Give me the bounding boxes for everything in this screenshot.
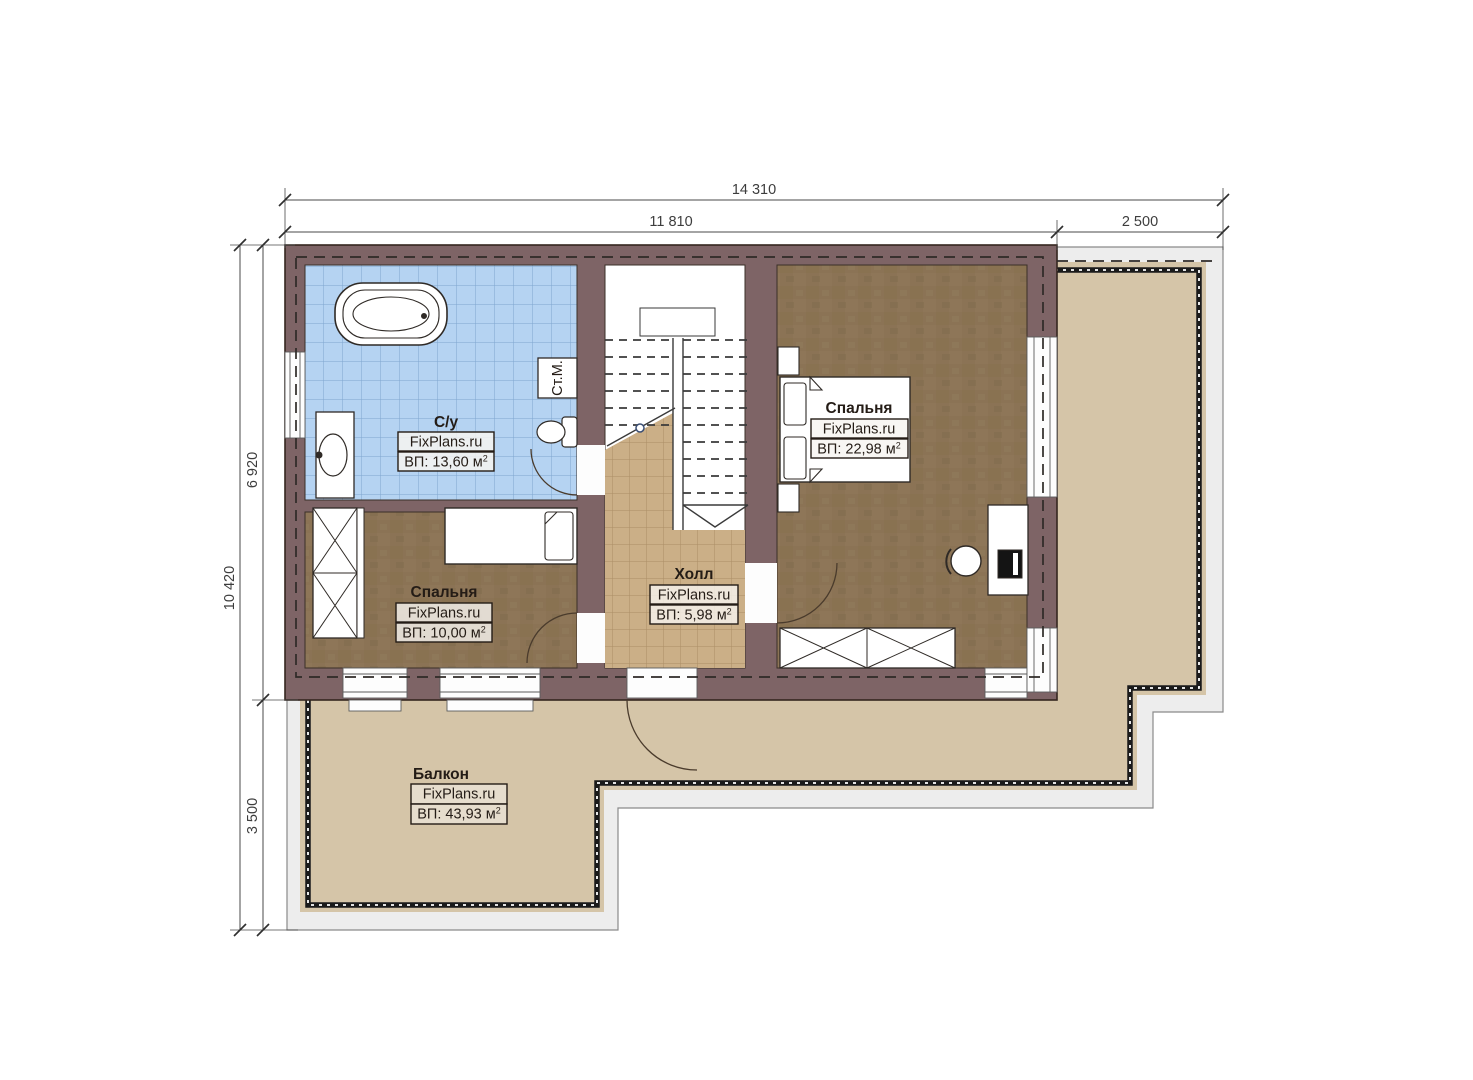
brand-bedroom-left: FixPlans.ru: [408, 606, 481, 622]
window-bottom-2: [440, 668, 540, 711]
area-value: ВП: 22,98 м: [817, 442, 895, 458]
door-opening-balcony: [627, 668, 697, 698]
area-value: ВП: 10,00 м: [402, 626, 480, 642]
area-balcony: ВП: 43,93 м2: [417, 806, 500, 823]
window-left-bathroom: [285, 352, 305, 438]
stair-route-node: [636, 424, 644, 432]
bathtub-drain: [422, 314, 427, 319]
sink: [316, 412, 354, 498]
dim-building-height: 6 920: [245, 452, 261, 488]
area-sup: 2: [483, 454, 488, 464]
bathtub: [335, 283, 447, 345]
area-sup: 2: [481, 625, 486, 635]
door-opening-bedroom-right: [745, 563, 777, 623]
room-name-bathroom: С/у: [434, 414, 459, 431]
area-hall: ВП: 5,98 м2: [656, 607, 731, 624]
monitor: [998, 550, 1022, 578]
door-opening-bedroom-left: [577, 613, 605, 663]
area-sup: 2: [896, 441, 901, 451]
door-opening-bathroom: [577, 445, 605, 495]
area-bathroom: ВП: 13,60 м2: [404, 454, 487, 471]
room-name-hall: Холл: [675, 566, 714, 583]
area-sup: 2: [727, 607, 732, 617]
wardrobe-bottom: [780, 628, 955, 668]
area-value: ВП: 13,60 м: [404, 455, 482, 471]
window-bottom-3: [985, 668, 1027, 698]
nightstand-bottom: [778, 484, 799, 512]
sink-tap: [316, 452, 322, 458]
area-bedroom-left: ВП: 10,00 м2: [402, 625, 485, 642]
window-bottom-1: [343, 668, 407, 711]
area-value: ВП: 43,93 м: [417, 807, 495, 823]
dim-overall-height: 10 420: [222, 566, 238, 610]
pillow-1: [784, 383, 806, 425]
washing-machine: Ст.М.: [538, 358, 577, 398]
desk: [988, 505, 1028, 595]
monitor-slit: [1013, 553, 1018, 575]
room-name-bedroom-left: Спальня: [411, 584, 478, 601]
brand-bedroom-right: FixPlans.ru: [823, 422, 896, 438]
area-value: ВП: 5,98 м: [656, 608, 726, 624]
dim-balcony-width: 2 500: [1122, 214, 1158, 230]
brand-hall: FixPlans.ru: [658, 588, 731, 604]
brand-balcony: FixPlans.ru: [423, 787, 496, 803]
nightstand-top: [778, 347, 799, 375]
dim-overall-width: 14 310: [732, 182, 776, 198]
room-name-balcony: Балкон: [413, 766, 469, 783]
window-right-lower: [1027, 628, 1057, 692]
floor-plan-svg: Ст.М.: [0, 0, 1473, 1080]
dim-building-width: 11 810: [649, 214, 692, 230]
dimension-top: 14 310 11 810 2 500: [279, 182, 1229, 250]
area-sup: 2: [496, 806, 501, 816]
wardrobe-left: [313, 508, 364, 638]
bed-single: [445, 508, 577, 564]
room-name-bedroom-right: Спальня: [826, 400, 893, 417]
window-right-upper: [1027, 337, 1057, 497]
area-bedroom-right: ВП: 22,98 м2: [817, 441, 900, 458]
pillow-2: [784, 437, 806, 479]
washing-machine-label: Ст.М.: [550, 360, 566, 396]
dim-balcony-height: 3 500: [245, 798, 261, 834]
brand-bathroom: FixPlans.ru: [410, 435, 483, 451]
